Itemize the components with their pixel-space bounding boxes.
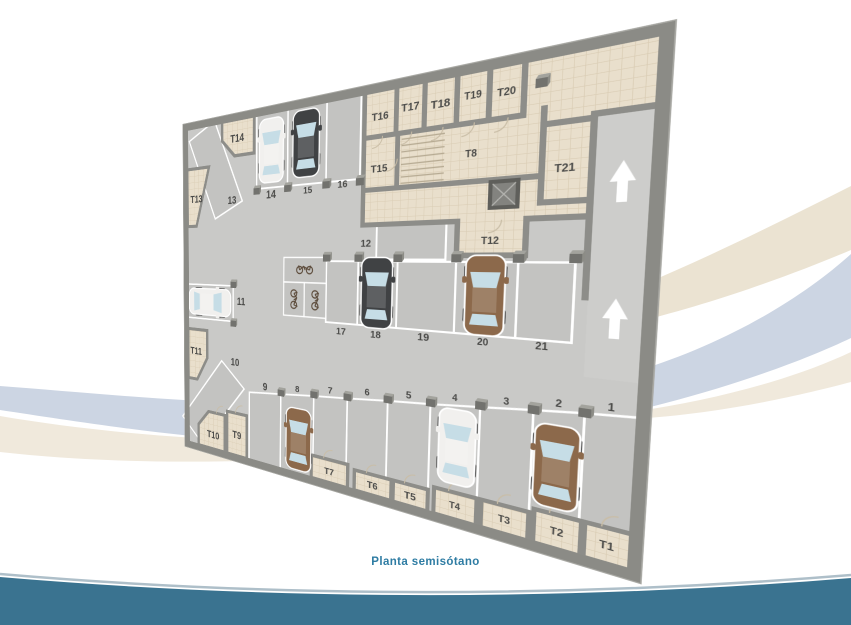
car-space-20 xyxy=(460,255,510,337)
parking-label-20: 20 xyxy=(477,338,489,349)
parking-label-6: 6 xyxy=(364,388,370,399)
storage-label-t13: T13 xyxy=(190,194,203,206)
page: T13 T14 T16 T17 T18 T19 T20 T15 T8 T21 T… xyxy=(0,0,851,625)
parking-label-17: 17 xyxy=(336,327,346,338)
car-space-4 xyxy=(434,406,480,490)
space-17 xyxy=(326,261,359,325)
car-space-18 xyxy=(358,257,396,329)
parking-label-16: 16 xyxy=(337,179,347,190)
bike-slot xyxy=(284,257,327,283)
parking-label-2: 2 xyxy=(555,399,562,411)
parking-label-8: 8 xyxy=(295,385,300,395)
storage-label-t9: T9 xyxy=(232,429,241,442)
car-space-2 xyxy=(528,421,585,515)
storage-label-t14: T14 xyxy=(230,131,244,145)
parking-label-21: 21 xyxy=(535,342,550,354)
space-16 xyxy=(326,95,361,183)
plan-caption: Planta semisótano xyxy=(0,556,851,568)
parking-label-12: 12 xyxy=(361,239,372,250)
parking-label-19: 19 xyxy=(417,332,429,344)
storage-label-t15: T15 xyxy=(371,163,388,176)
storage-label-t8: T8 xyxy=(465,149,477,161)
space-19 xyxy=(396,262,456,333)
parking-label-9: 9 xyxy=(263,381,268,393)
space-12 xyxy=(376,223,446,260)
parking-label-3: 3 xyxy=(503,397,509,408)
parking-label-10: 10 xyxy=(231,356,240,368)
car-space-11 xyxy=(189,286,230,320)
storage-label-t12: T12 xyxy=(481,237,499,248)
parking-label-7: 7 xyxy=(328,386,333,397)
space-9 xyxy=(249,388,281,468)
parking-label-18: 18 xyxy=(370,330,381,341)
parking-label-11: 11 xyxy=(237,296,246,308)
parking-label-14: 14 xyxy=(266,188,276,201)
space-21 xyxy=(515,262,575,343)
storage-label-t21: T21 xyxy=(554,163,577,176)
parking-label-13: 13 xyxy=(228,194,237,206)
storage-label-t11: T11 xyxy=(190,345,202,357)
parking-label-5: 5 xyxy=(406,390,412,402)
car-space-8 xyxy=(284,406,314,475)
parking-label-15: 15 xyxy=(303,186,312,197)
elevator xyxy=(488,178,521,210)
car-space-14 xyxy=(257,115,286,183)
car-space-15 xyxy=(290,106,322,178)
